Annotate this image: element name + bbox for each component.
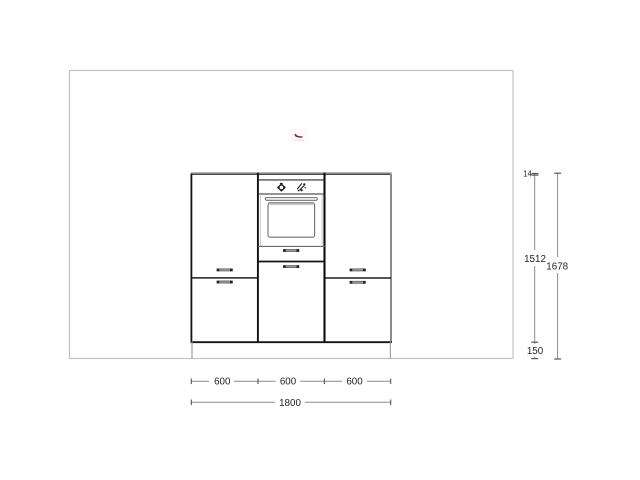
- svg-text:14: 14: [523, 169, 532, 178]
- svg-text:600: 600: [280, 377, 297, 388]
- svg-text:1678: 1678: [546, 261, 568, 272]
- svg-text:600: 600: [214, 377, 231, 388]
- svg-text:150: 150: [527, 346, 544, 357]
- svg-text:1800: 1800: [279, 398, 301, 409]
- svg-text:600: 600: [346, 377, 363, 388]
- svg-text:1512: 1512: [524, 254, 546, 265]
